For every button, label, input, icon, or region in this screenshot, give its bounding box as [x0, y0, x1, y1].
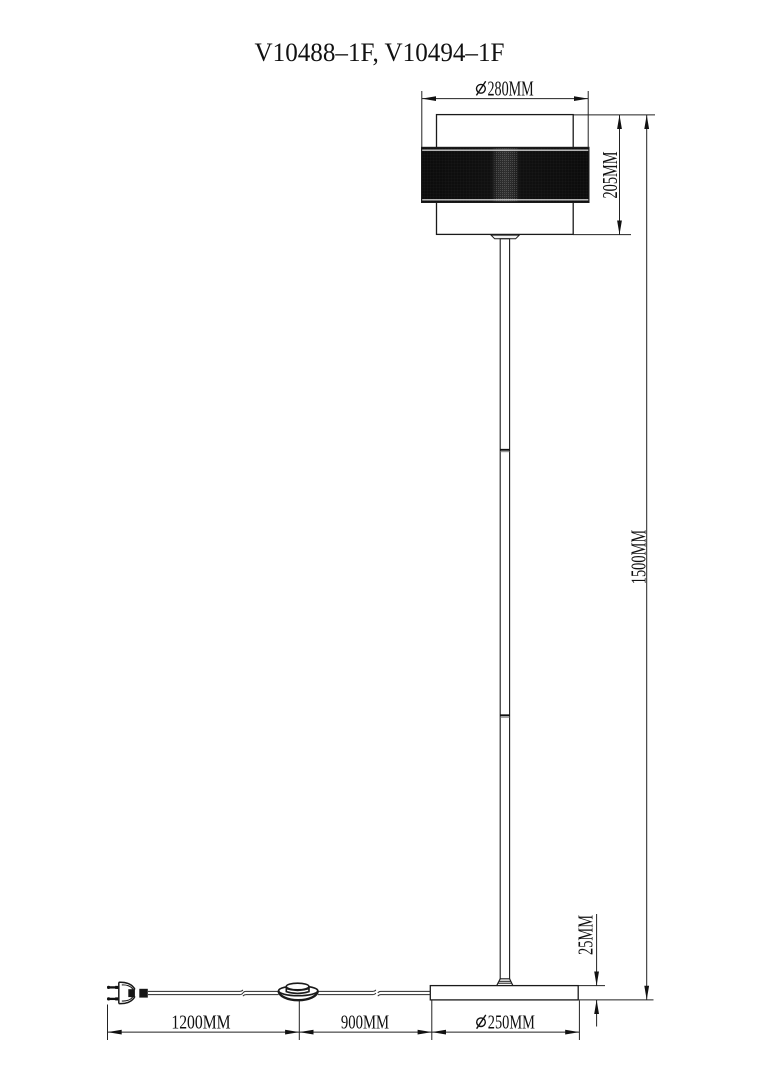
svg-text:900MM: 900MM	[341, 1012, 389, 1033]
svg-text:205MM: 205MM	[598, 151, 621, 198]
svg-text:250MM: 250MM	[488, 1011, 535, 1033]
svg-text:280MM: 280MM	[488, 77, 534, 100]
svg-text:V10488–1F, V10494–1F: V10488–1F, V10494–1F	[255, 38, 505, 67]
svg-text:25MM: 25MM	[574, 915, 597, 955]
svg-text:1500MM: 1500MM	[627, 530, 650, 584]
svg-text:1200MM: 1200MM	[171, 1011, 231, 1033]
